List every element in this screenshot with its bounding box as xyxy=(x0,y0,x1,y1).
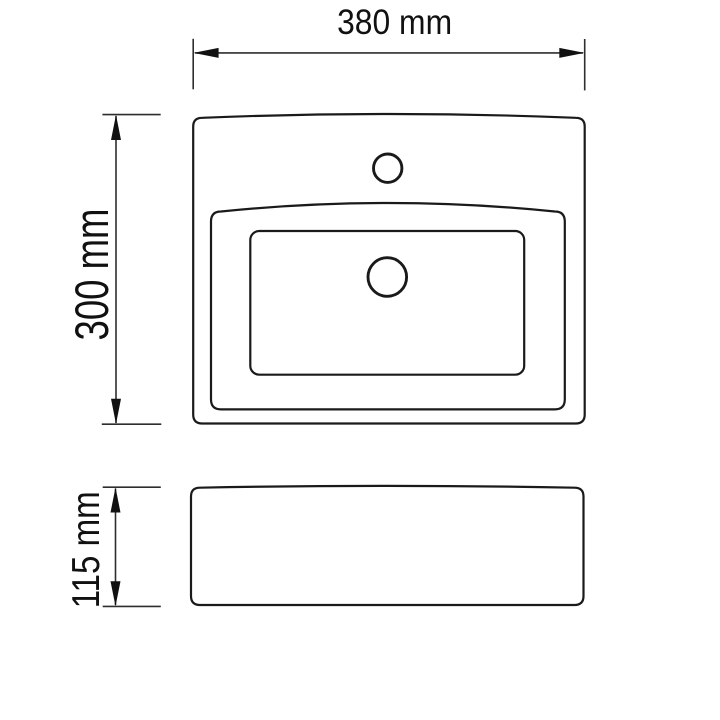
svg-text:380 mm: 380 mm xyxy=(337,2,452,42)
svg-text:300 mm: 300 mm xyxy=(66,209,119,341)
svg-text:115 mm: 115 mm xyxy=(65,491,108,608)
